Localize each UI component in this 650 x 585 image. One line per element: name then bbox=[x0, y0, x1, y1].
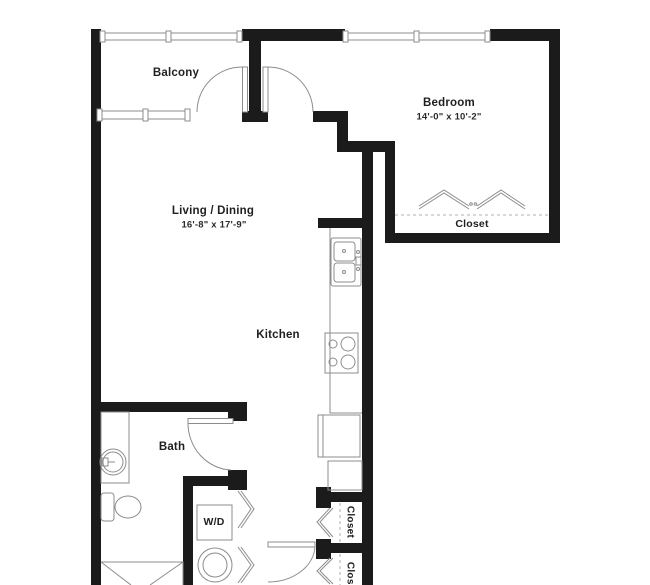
closet-door-pull bbox=[470, 203, 473, 206]
entry-door-leaf bbox=[268, 542, 315, 547]
bath-fixtures bbox=[100, 412, 183, 585]
kitchen-counter-edge bbox=[330, 228, 362, 413]
bedroom-label: Bedroom bbox=[423, 97, 475, 109]
balcony-door-left-swing bbox=[197, 67, 242, 112]
wd-label: W/D bbox=[203, 516, 224, 528]
floorplan-drawing bbox=[0, 0, 650, 585]
wall-balcony-divider bbox=[249, 40, 261, 114]
bath-door-leaf bbox=[188, 419, 233, 424]
window-balcony-top bbox=[100, 31, 242, 42]
bath-sink bbox=[100, 449, 126, 475]
washer bbox=[198, 548, 232, 582]
living-dining-label: Living / Dining bbox=[172, 205, 254, 217]
window-balcony-south bbox=[97, 109, 190, 121]
bifold-doors bbox=[238, 190, 525, 584]
kitchen-sink bbox=[331, 238, 361, 286]
wall-kitchen-north-stub bbox=[318, 218, 373, 228]
balcony-door-left-leaf bbox=[243, 67, 248, 112]
bedroom-closet-bifold-left bbox=[419, 190, 469, 209]
bedroom-dimensions: 14'-0" x 10'-2" bbox=[416, 112, 481, 123]
bedroom-door-leaf bbox=[263, 67, 268, 112]
wall-bath-north bbox=[91, 402, 247, 412]
closet-door-pull bbox=[474, 203, 477, 206]
wd-bifold-top bbox=[238, 491, 254, 528]
kitchen-fixtures bbox=[318, 228, 362, 490]
hall-closet2-label: Closet bbox=[345, 562, 356, 585]
bath-label: Bath bbox=[159, 441, 185, 453]
shower bbox=[101, 562, 183, 585]
bedroom-closet-label: Closet bbox=[455, 218, 488, 230]
wd-bifold-bottom bbox=[238, 547, 254, 583]
refrigerator bbox=[318, 415, 360, 457]
kitchen-cabinet bbox=[328, 461, 362, 490]
wall-kitchen-east bbox=[362, 141, 373, 585]
floor-plan: Balcony Bedroom 14'-0" x 10'-2" Living /… bbox=[0, 0, 650, 585]
entry-door-swing bbox=[268, 547, 315, 582]
wall-bedroom-closet-west bbox=[385, 142, 395, 243]
balcony-label: Balcony bbox=[153, 67, 199, 79]
wall-bedroom-closet-bottom bbox=[390, 233, 560, 243]
hall-closet1-bifold bbox=[317, 508, 333, 537]
wall-top-mid bbox=[242, 29, 345, 41]
bath-door-swing bbox=[188, 423, 231, 470]
hall-closet1-label: Closet bbox=[345, 506, 356, 538]
wall-balcony-divider-foot bbox=[242, 111, 268, 122]
wall-hall-closet-mid-block bbox=[316, 539, 331, 559]
bedroom-door-swing bbox=[268, 67, 313, 112]
kitchen-label: Kitchen bbox=[256, 329, 300, 341]
wall-right bbox=[549, 29, 560, 243]
window-bedroom-top bbox=[343, 31, 490, 42]
hall-closet2-bifold bbox=[317, 558, 333, 584]
wall-wd-west bbox=[183, 476, 193, 585]
toilet bbox=[101, 493, 141, 521]
bedroom-closet-bifold-right bbox=[477, 190, 525, 209]
living-dining-dimensions: 16'-8" x 17'-9" bbox=[181, 220, 246, 231]
